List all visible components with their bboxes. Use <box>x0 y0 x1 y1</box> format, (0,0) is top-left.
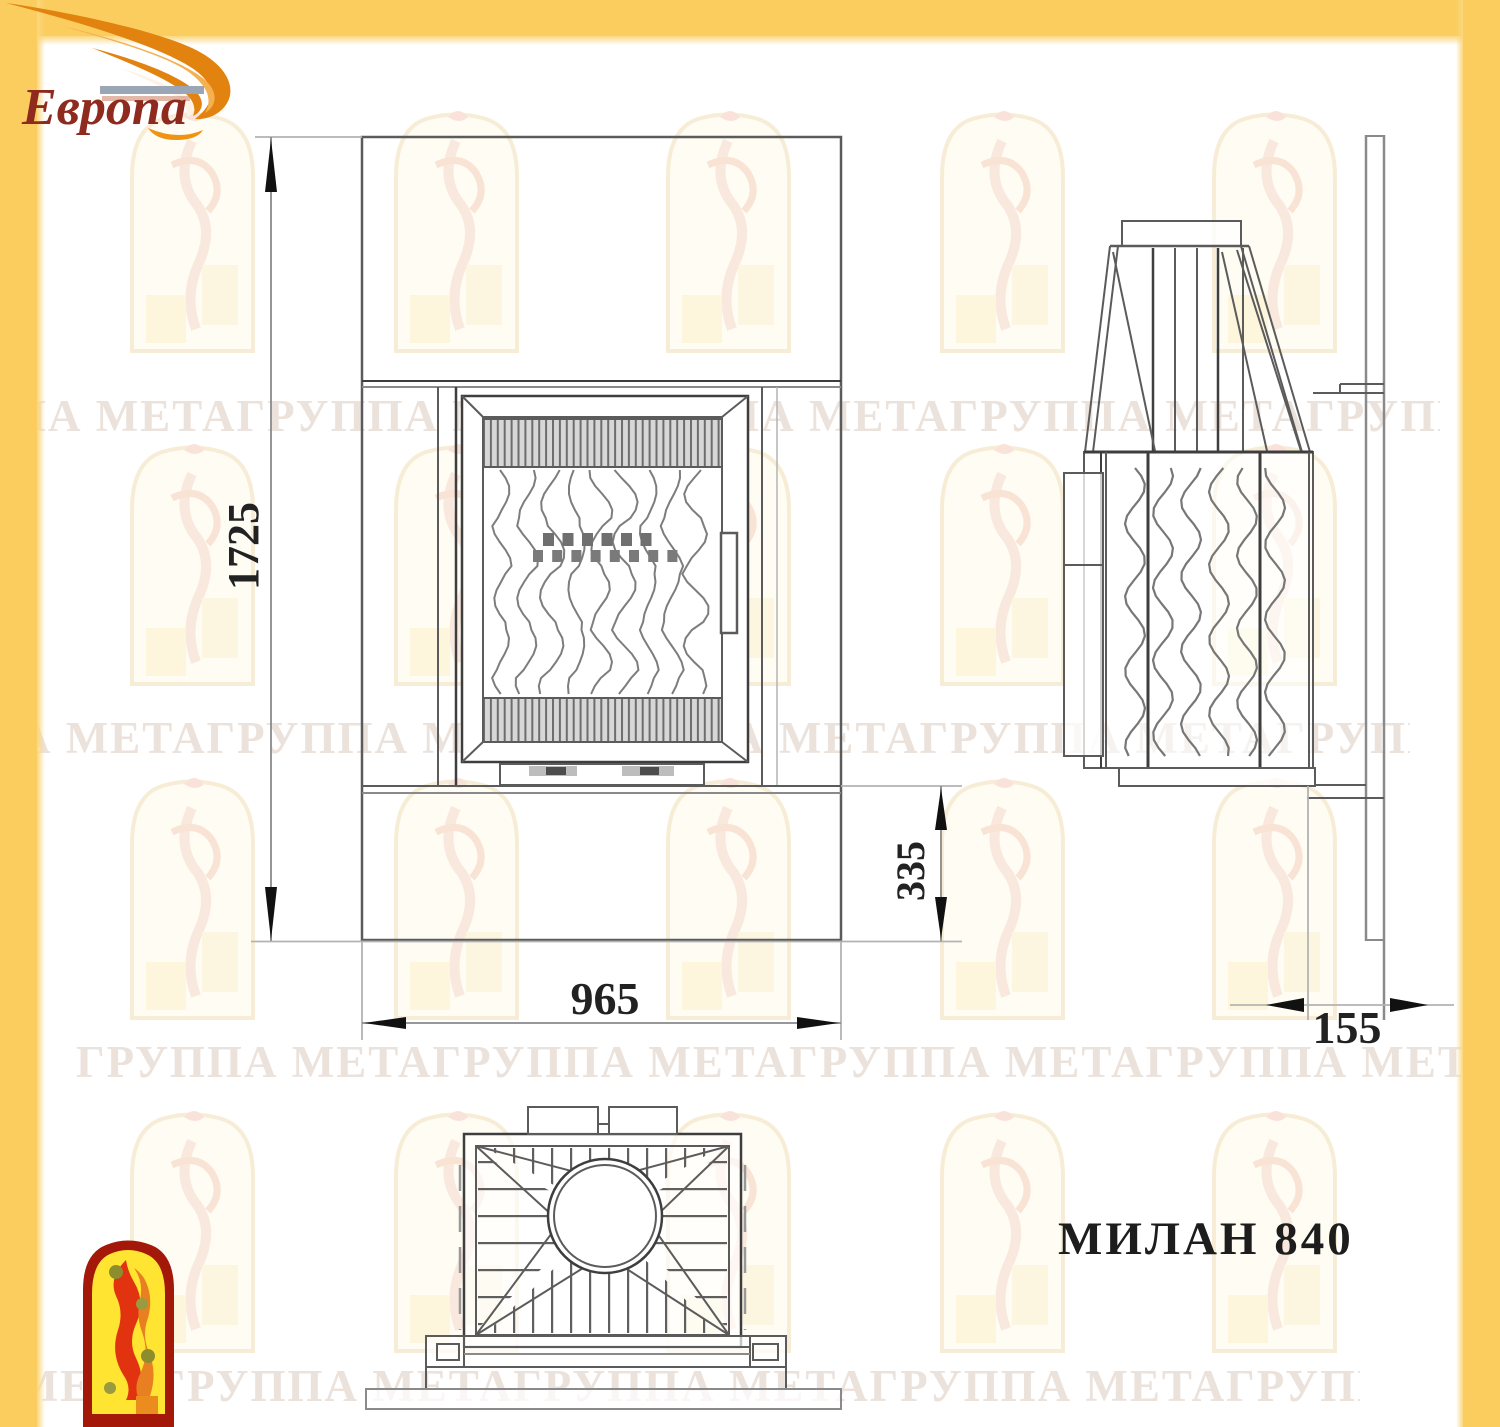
svg-text:965: 965 <box>571 973 640 1024</box>
svg-text:155: 155 <box>1313 1002 1382 1053</box>
svg-text:1725: 1725 <box>219 502 268 590</box>
svg-text:335: 335 <box>888 841 933 901</box>
svg-text:Европа: Европа <box>21 79 187 136</box>
